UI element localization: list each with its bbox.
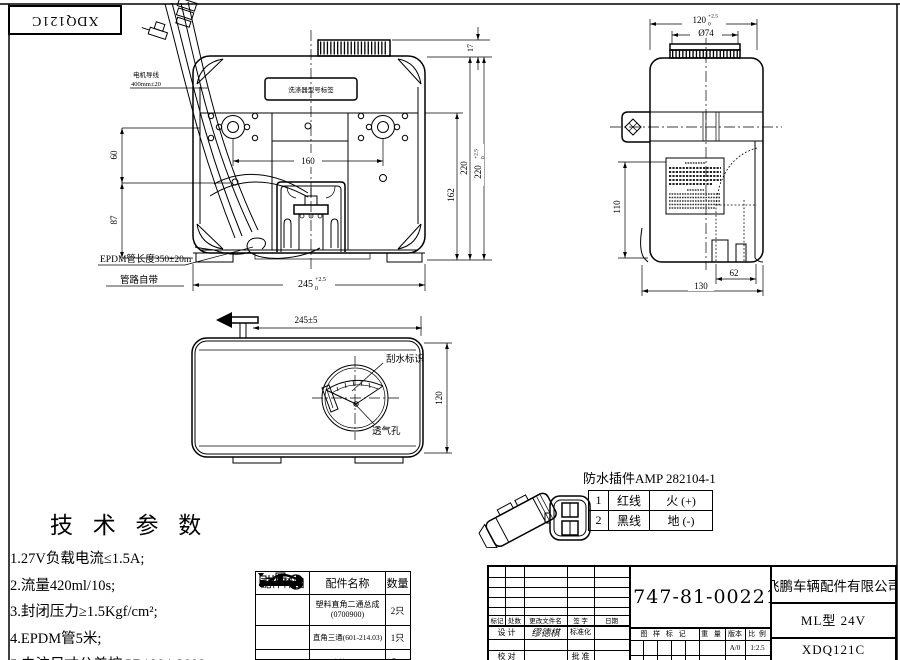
connector-side-view <box>473 486 558 553</box>
drawing-sheet: 洗涤器型号标签 <box>0 0 900 660</box>
pin-signal: 火 (+) <box>650 491 713 511</box>
parts-name-line1: 直角三通(601-214.03) <box>310 626 386 649</box>
approve-label: 批 准 <box>567 650 594 660</box>
dim-220-tol: 220 <box>473 165 483 179</box>
dim-130: 130 <box>694 281 708 291</box>
top-dimensions: 245±5 120 <box>253 314 452 453</box>
dim-17: 17 <box>466 44 475 52</box>
dim-62: 62 <box>730 268 739 278</box>
pin-row: 1 红线 火 (+) <box>589 491 713 511</box>
tech-params-title: 技 术 参 数 <box>50 506 260 540</box>
label-wiper-mark: 刮水标识 <box>386 353 424 365</box>
connector-title: 防水插件AMP 282104-1 <box>583 468 716 487</box>
hose-tubes <box>141 0 258 238</box>
parts-qty: 2只 <box>386 595 409 625</box>
callout-motor-wire-1: 电机导线 <box>133 70 160 79</box>
drawing-number: XDQ121C <box>770 637 897 660</box>
standardization-label: 标准化 <box>567 625 594 639</box>
corner-stamp: XDQ121C <box>8 5 122 35</box>
warning-label <box>666 158 724 214</box>
part-number: 3747-81-00221 <box>629 567 770 627</box>
company-name: 飞鹏车辆配件有限公司 <box>770 567 897 602</box>
check-label: 校 对 <box>489 650 524 660</box>
rev-col-date: 日期 <box>594 615 629 625</box>
dim-cap-dia: Ø74 <box>698 28 714 38</box>
parts-name-line2: (0700900) <box>331 610 364 620</box>
callout-motor-wire-2: 400mm±20 <box>131 81 161 88</box>
side-view: 120 +2.5 0 Ø74 110 62 130 <box>610 12 782 296</box>
dim-162: 162 <box>446 188 456 202</box>
parts-name-line1: 塑料直角二通总成 <box>316 600 380 610</box>
nozzle-fitting <box>141 18 170 39</box>
parts-table: 配件样图 配件名称 数量 塑料直角二通总成 (0700900) 2只 <box>255 571 411 660</box>
parts-row: 直角三通(601-214.03) 1只 <box>256 626 410 650</box>
front-view: 洗涤器型号标签 <box>98 0 492 292</box>
design-label: 设 计 <box>489 625 524 639</box>
dim-120-tol-up: +2.5 <box>708 14 718 20</box>
parts-qty: 1只 <box>386 626 409 649</box>
dim-60: 60 <box>109 150 119 160</box>
dim-220: 220 <box>459 161 469 175</box>
tee-fitting-icon <box>256 626 310 649</box>
model-label-text: 洗涤器型号标签 <box>288 85 334 94</box>
dim-220-tol-up: +2.5 <box>474 149 480 159</box>
tech-param-item: 5.未注尺寸公差按GB1804-2000。 <box>10 652 260 660</box>
dim-220-tol-dn: 0 <box>481 156 487 159</box>
pump-hoses <box>195 174 320 258</box>
parts-header-qty: 数量 <box>386 572 409 594</box>
connector-pin-table: 1 红线 火 (+) 2 黑线 地 (-) <box>588 490 713 531</box>
pin-no: 2 <box>589 511 609 531</box>
dim-160: 160 <box>301 156 315 166</box>
pin-no: 1 <box>589 491 609 511</box>
dim-245-tol-dn: 0 <box>315 286 318 292</box>
tech-param-item: 4.EPDM管5米; <box>10 626 260 653</box>
dim-245-tol-up: +2.5 <box>315 277 326 283</box>
pin-wire: 红线 <box>609 491 650 511</box>
center-hole <box>305 123 311 129</box>
rev-col-sign: 签 字 <box>567 615 594 625</box>
hose-icon <box>256 650 310 660</box>
pin-wire: 黑线 <box>609 511 650 531</box>
mark-label: 图 样 标 记 <box>629 627 699 640</box>
outlet-nozzle <box>216 312 258 338</box>
elbow-fitting-icon <box>256 595 310 625</box>
plate-hole <box>380 175 387 182</box>
foot-right <box>387 253 422 262</box>
dim-87: 87 <box>109 215 119 225</box>
tech-param-item: 2.流量420ml/10s; <box>10 573 260 600</box>
dim-245-top: 245±5 <box>295 315 318 325</box>
version-value: A/0 <box>725 640 745 655</box>
side-filler-cap <box>670 44 740 58</box>
rev-col-mark: 标记 <box>489 615 505 625</box>
weight-label: 重 量 <box>699 627 725 640</box>
tech-param-item: 1.27V负载电流≤1.5A; <box>10 546 260 573</box>
dim-245: 245 <box>298 279 313 290</box>
foot-hook <box>641 228 648 262</box>
label-vent-hole: 透气孔 <box>372 425 401 437</box>
filler-cap <box>318 40 390 56</box>
dim-120-topview: 120 <box>434 391 444 405</box>
parts-header-name: 配件名称 <box>310 572 386 594</box>
callout-hose-2: 管路自带 <box>120 274 159 286</box>
callout-hose-1: EPDM管长度350±20m <box>100 253 192 265</box>
parts-name-line1: EPDM水管(101-04071) <box>310 650 386 660</box>
title-block: 标记 处数 更改文件名 签 字 日期 设 计 缪德棋 标准化 校 对 批 准 3… <box>487 565 897 660</box>
dim-120-top: 120 <box>693 15 707 25</box>
tech-param-item: 3.封闭压力≥1.5Kgf/cm²; <box>10 599 260 626</box>
parts-row: EPDM水管(101-04071) 5m <box>256 650 410 660</box>
rev-col-count: 处数 <box>505 615 524 625</box>
tech-params: 技 术 参 数 1.27V负载电流≤1.5A; 2.流量420ml/10s; 3… <box>10 506 260 660</box>
dim-110: 110 <box>612 200 622 214</box>
parts-row: 塑料直角二通总成 (0700900) 2只 <box>256 595 410 626</box>
pin-row: 2 黑线 地 (-) <box>589 511 713 531</box>
version-label: 版本 <box>725 627 745 640</box>
scale-label: 比 例 <box>745 627 770 640</box>
connector-detail <box>473 486 590 553</box>
pin-signal: 地 (-) <box>650 511 713 531</box>
designer-name: 缪德棋 <box>524 625 567 639</box>
scale-value: 1:2.5 <box>745 640 770 655</box>
parts-qty: 5m <box>386 650 409 660</box>
wiper-icon <box>322 380 383 412</box>
top-view: 245±5 120 刮水标识 透气孔 <box>192 312 452 463</box>
side-tank-outline <box>650 58 763 262</box>
model-name: ML型 24V <box>770 602 897 637</box>
rev-col-doc: 更改文件名 <box>524 615 567 625</box>
corner-stamp-text: XDQ121C <box>31 12 99 28</box>
pump-flange-right <box>358 113 407 140</box>
